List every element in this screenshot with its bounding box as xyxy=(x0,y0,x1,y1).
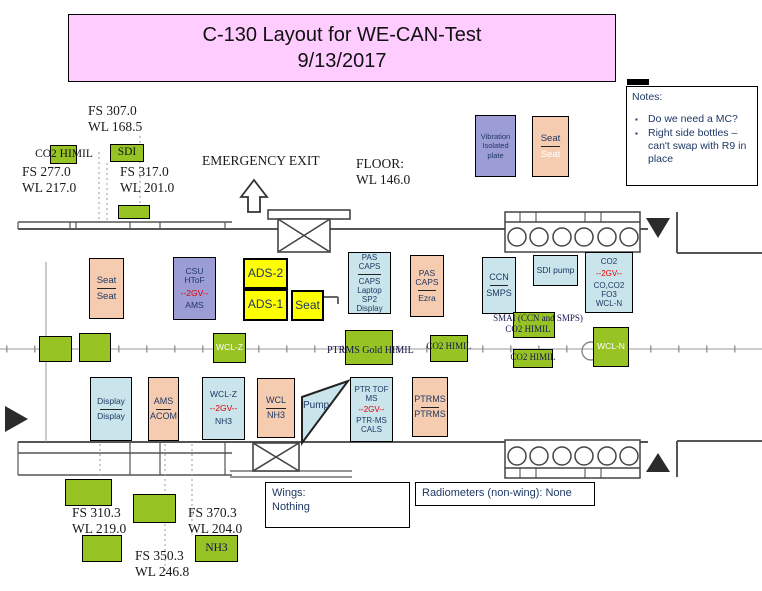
divider xyxy=(358,274,381,275)
gv-label: --2GV-- xyxy=(181,289,209,299)
title-line2: 9/13/2017 xyxy=(298,48,387,74)
gv-label: --2GV-- xyxy=(596,269,622,278)
station-label-fs350: FS 350.3 WL 246.8 xyxy=(135,548,189,580)
equip-sdi-pump: SDI pump xyxy=(533,255,578,286)
green-marker-box xyxy=(39,336,72,362)
equip-pas-caps-display: PAS CAPS CAPS Laptop SP2 Display xyxy=(348,252,391,314)
equip-label: PTRMS xyxy=(414,395,446,405)
equip-label: PAS CAPS xyxy=(359,253,381,271)
equip-label: ACOM xyxy=(150,412,177,422)
notes-panel: Notes: Do we need a MC? Right side bottl… xyxy=(626,86,758,186)
equip-ads1: ADS-1 xyxy=(243,289,288,321)
equip-ptr-tof: PTR TOF MS --2GV-- PTR-MS CALS xyxy=(350,377,393,442)
station-label-fs370: FS 370.3 WL 204.0 xyxy=(188,505,242,537)
divider xyxy=(156,409,172,410)
seat-top-box: Seat Seat xyxy=(532,116,569,177)
equip-csu-htof-ams: CSU HToF --2GV-- AMS xyxy=(173,257,216,320)
station-label-fs310: FS 310.3 WL 219.0 xyxy=(72,505,126,537)
station-label-fs277: FS 277.0 WL 217.0 xyxy=(22,164,76,196)
notes-heading: Notes: xyxy=(632,91,752,103)
equip-label: PAS CAPS xyxy=(415,269,438,288)
equip-label: CO,CO2 FO3 WCL-N xyxy=(594,281,625,308)
equip-display: Display Display xyxy=(90,377,132,441)
equip-seat-yellow: Seat xyxy=(291,290,324,321)
equip-label: CO2 xyxy=(601,257,617,266)
equip-pas-caps-ezra: PAS CAPS Ezra xyxy=(410,255,444,317)
green-marker-box xyxy=(79,333,111,362)
divider xyxy=(490,285,508,286)
right-triangle-icon xyxy=(5,406,28,432)
seat-label: Seat xyxy=(97,292,117,302)
equip-label: NH3 xyxy=(215,417,232,427)
equip-label: SMPS xyxy=(486,289,512,299)
co2-himil-top-label: CO2 HIMIL xyxy=(28,148,100,160)
down-triangle-icon xyxy=(646,218,670,238)
floor-label: FLOOR: WL 146.0 xyxy=(356,156,410,188)
equip-label: CSU HToF xyxy=(184,267,204,286)
ptrms-gold-label: PTRMS Gold HIMIL xyxy=(327,345,413,356)
equip-label: PTR-MS CALS xyxy=(356,416,387,434)
equip-ptrms: PTRMS PTRMS xyxy=(412,377,448,437)
seat-label: Seat xyxy=(541,150,561,160)
equip-label: Display xyxy=(97,397,125,407)
c130-layout-diagram: C-130 Layout for WE-CAN-Test 9/13/2017 N… xyxy=(0,0,762,591)
equip-ccn-smps: CCN SMPS xyxy=(482,257,516,314)
station-label-fs307: FS 307.0 WL 168.5 xyxy=(88,103,142,135)
aft-hatch xyxy=(253,443,299,471)
title-banner: C-130 Layout for WE-CAN-Test 9/13/2017 xyxy=(68,14,616,82)
green-marker-box xyxy=(133,494,176,523)
equip-label: WCL xyxy=(266,396,286,406)
equip-label: WCL-Z xyxy=(210,390,237,400)
smai-label-line1: SMAI (CCN and SMPS) xyxy=(492,313,584,323)
equip-label: Ezra xyxy=(418,294,435,304)
seat-label: Seat xyxy=(541,134,561,144)
wclz-mid-box: WCL-Z xyxy=(213,333,246,363)
note-item: Do we need a MC? xyxy=(632,113,752,126)
vibration-plate-box: Vibration Isolated plate xyxy=(475,115,516,177)
divider xyxy=(421,407,440,408)
emergency-exit-hatch xyxy=(268,210,350,252)
equip-label: CCN xyxy=(489,273,509,283)
equip-label: AMS xyxy=(185,301,203,311)
gv-label: --2GV-- xyxy=(358,405,384,414)
equip-label: PTRMS xyxy=(414,410,446,420)
seat-label: Seat xyxy=(97,276,117,286)
station-label-fs317: FS 317.0 WL 201.0 xyxy=(120,164,174,196)
equip-seat-left: Seat Seat xyxy=(89,258,124,319)
green-marker-box xyxy=(82,535,122,562)
divider xyxy=(97,288,115,289)
sdi-box: SDI xyxy=(110,144,144,162)
emergency-exit-label: EMERGENCY EXIT xyxy=(202,153,320,169)
emergency-exit-arrow-icon xyxy=(241,180,267,212)
notes-tab-mark xyxy=(627,79,649,85)
note-item: Right side bottles – can't swap with R9 … xyxy=(632,127,752,166)
wings-note: Wings: Nothing xyxy=(265,482,410,528)
equip-label: CAPS Laptop SP2 Display xyxy=(356,277,382,313)
green-marker-box xyxy=(65,479,112,506)
equip-co2-rack: CO2 --2GV-- CO,CO2 FO3 WCL-N xyxy=(585,252,633,313)
equip-wcl-nh3: WCL NH3 xyxy=(257,378,295,438)
notes-list: Do we need a MC? Right side bottles – ca… xyxy=(632,113,752,166)
pump-label: Pump xyxy=(303,400,329,411)
equip-label: PTR TOF MS xyxy=(355,385,389,403)
co2-himil-mid-label: CO2 HIMIL xyxy=(425,341,473,351)
gv-label: --2GV-- xyxy=(210,404,238,414)
equip-wclz-nh3: WCL-Z --2GV-- NH3 xyxy=(202,377,245,440)
equip-ads2: ADS-2 xyxy=(243,258,288,289)
up-triangle-icon xyxy=(646,453,670,472)
pump-triangle xyxy=(302,381,348,443)
divider xyxy=(266,408,286,409)
radiometers-note: Radiometers (non-wing): None xyxy=(415,482,595,506)
title-line1: C-130 Layout for WE-CAN-Test xyxy=(203,22,482,48)
equip-ams-acom: AMS ACOM xyxy=(148,377,179,441)
divider xyxy=(100,409,122,410)
divider xyxy=(541,146,560,147)
divider xyxy=(418,290,436,291)
equip-label: AMS xyxy=(154,397,174,407)
smai-label-line2: CO2 HIMIL xyxy=(498,324,558,334)
co2-himil-low-label: CO2 HIMIL xyxy=(508,352,558,362)
equip-label: Display xyxy=(97,412,125,422)
equip-label: NH3 xyxy=(267,411,285,421)
wcln-box: WCL-N xyxy=(593,327,629,367)
bottle-rack-top xyxy=(505,212,640,252)
nh3-box: NH3 xyxy=(195,535,238,562)
green-marker-box xyxy=(118,205,150,219)
bottle-rack-bottom xyxy=(505,440,640,478)
